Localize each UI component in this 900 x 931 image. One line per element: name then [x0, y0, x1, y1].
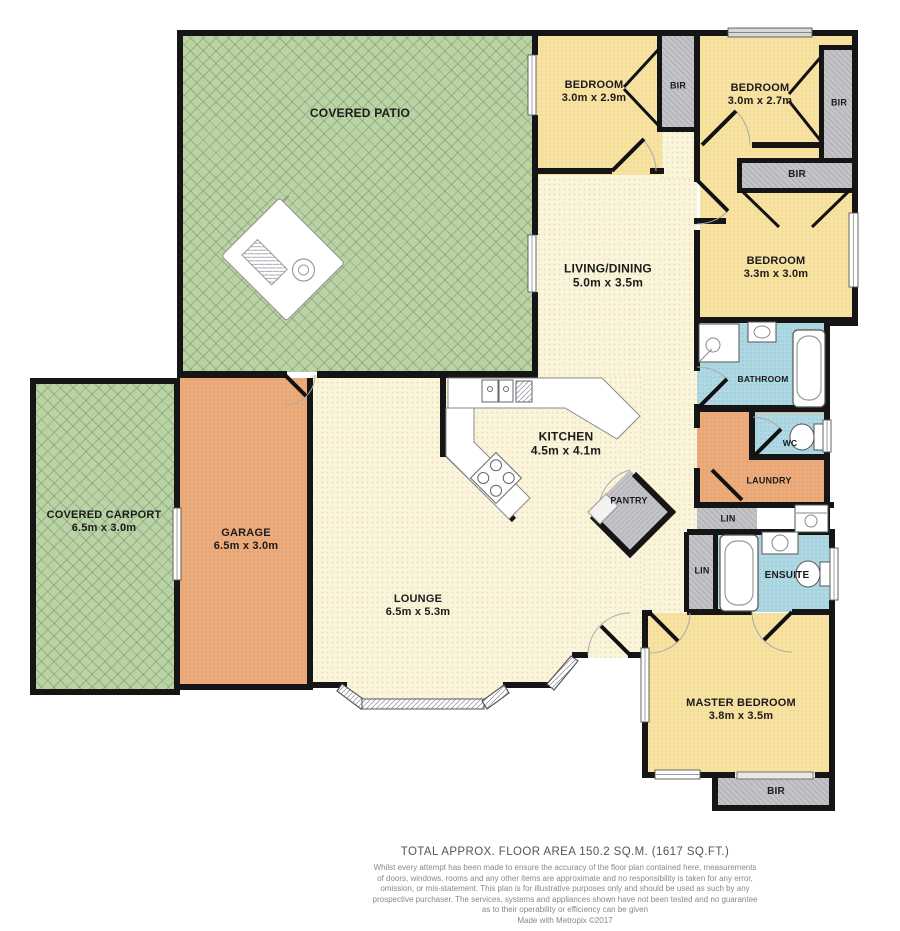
wall: [737, 158, 742, 192]
wall: [829, 529, 835, 548]
label-garage: GARAGE6.5m x 3.0m: [214, 527, 279, 553]
wall: [687, 609, 752, 615]
wall: [713, 532, 718, 612]
wall: [684, 532, 689, 612]
disclaimer: Whilst every attempt has been made to en…: [230, 863, 900, 926]
wall: [532, 36, 538, 55]
wall: [752, 142, 824, 148]
wall: [174, 580, 180, 690]
wall: [642, 610, 652, 616]
room-wc: [755, 413, 827, 457]
wall: [628, 652, 648, 658]
wall: [174, 684, 313, 690]
label-lounge: LOUNGE6.5m x 5.3m: [386, 593, 451, 619]
wall: [718, 772, 735, 778]
wall: [737, 158, 853, 163]
wall: [307, 682, 347, 688]
wall: [824, 452, 830, 508]
wall: [30, 378, 180, 384]
wall: [174, 384, 180, 508]
wall: [657, 127, 694, 132]
label-living-dining: LIVING/DINING5.0m x 3.5m: [564, 262, 652, 291]
room-master-bedroom: [648, 613, 835, 775]
wall: [177, 30, 183, 378]
wall: [829, 600, 835, 811]
label-kitchen: KITCHEN4.5m x 4.1m: [531, 430, 601, 459]
wall: [440, 377, 446, 457]
label-covered-carport: COVERED CARPORT6.5m x 3.0m: [47, 509, 162, 535]
disclaimer-line: as to their operability or efficiency ca…: [230, 905, 900, 916]
label-bedroom3: BEDROOM3.3m x 3.0m: [744, 255, 809, 281]
label-bir2: BIR: [831, 98, 847, 109]
wall: [650, 168, 664, 174]
wall: [503, 682, 551, 688]
footer: TOTAL APPROX. FLOOR AREA 150.2 SQ.M. (16…: [230, 846, 900, 926]
wall: [694, 502, 834, 508]
wall: [307, 378, 313, 690]
wall: [737, 188, 853, 193]
wall: [749, 454, 830, 460]
wall: [642, 722, 648, 778]
label-ensuite: ENSUITE: [765, 570, 810, 582]
label-master-bedroom: MASTER BEDROOM3.8m x 3.5m: [686, 697, 796, 723]
hall-bedrooms: [660, 130, 697, 178]
wall: [657, 36, 662, 132]
label-covered-patio: COVERED PATIO: [310, 106, 410, 120]
label-bir1: BIR: [670, 81, 686, 92]
wall: [694, 405, 830, 412]
label-bedroom1: BEDROOM3.0m x 2.9m: [562, 79, 627, 105]
bay-window-floor: [340, 685, 510, 705]
floor-area-title: TOTAL APPROX. FLOOR AREA 150.2 SQ.M. (16…: [230, 846, 900, 858]
label-laundry: LAUNDRY: [746, 476, 791, 487]
room-covered-carport: [33, 381, 177, 692]
wall: [712, 805, 835, 811]
room-covered-patio: [180, 36, 532, 372]
made-with-credit: Made with Metropix ©2017: [230, 916, 900, 927]
wall: [30, 378, 36, 695]
disclaimer-line: prospective purchaser. The services, sys…: [230, 895, 900, 906]
disclaimer-line: omission, or mis-statement. This plan is…: [230, 884, 900, 895]
room-kitchen-east: [573, 375, 643, 658]
wall: [694, 36, 700, 140]
label-pantry: PANTRY: [610, 496, 647, 507]
disclaimer-line: of doors, windows, rooms and any other i…: [230, 874, 900, 885]
label-lin2: LIN: [694, 566, 709, 577]
wall: [694, 317, 858, 323]
wall: [572, 652, 588, 658]
wall: [749, 411, 755, 460]
label-bathroom: BATHROOM: [737, 374, 788, 384]
disclaimer-line: Whilst every attempt has been made to en…: [230, 863, 900, 874]
label-bir3: BIR: [788, 169, 806, 181]
wall: [694, 140, 700, 182]
label-bedroom2: BEDROOM3.0m x 2.7m: [728, 82, 793, 108]
wall: [532, 168, 612, 174]
wall: [532, 115, 538, 235]
room-bathroom: [697, 323, 830, 405]
wall: [687, 529, 835, 535]
label-wc: WC: [783, 438, 798, 448]
label-lin1: LIN: [720, 514, 735, 525]
floor-plan: COVERED PATIO COVERED CARPORT6.5m x 3.0m…: [0, 0, 900, 931]
wall: [177, 30, 858, 36]
wall: [532, 292, 538, 378]
wall: [694, 218, 726, 224]
wall: [852, 36, 858, 213]
wall: [819, 48, 824, 160]
wall: [819, 45, 853, 50]
wall: [177, 371, 287, 378]
wall: [30, 689, 180, 695]
wall: [694, 230, 700, 371]
label-bir4: BIR: [767, 786, 785, 798]
wall: [317, 371, 536, 378]
wall: [642, 772, 656, 778]
wall: [792, 609, 835, 615]
wall: [815, 772, 829, 778]
wall: [694, 468, 700, 502]
